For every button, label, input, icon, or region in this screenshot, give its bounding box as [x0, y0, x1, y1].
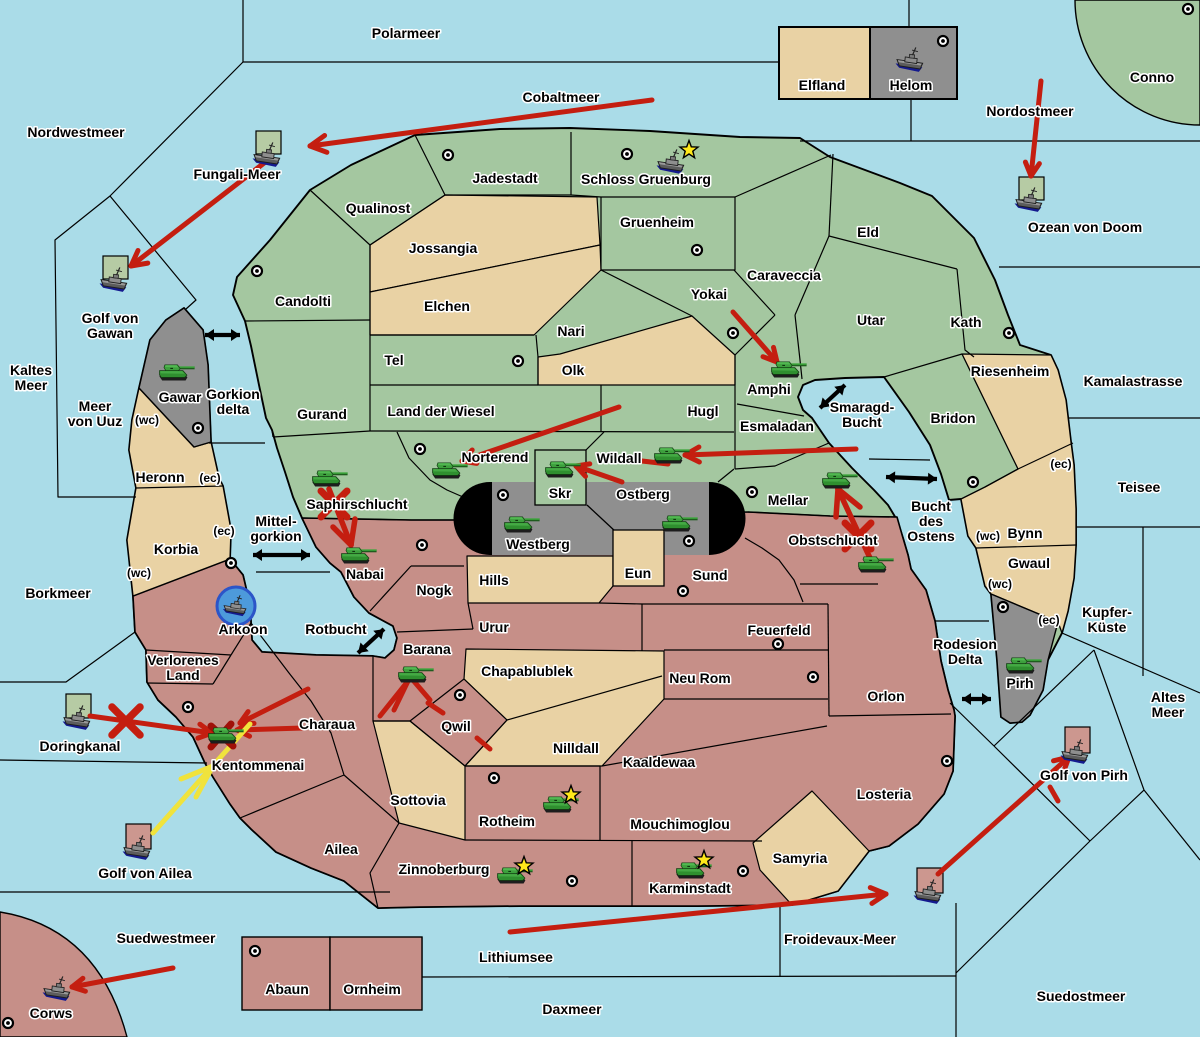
svg-text:gorkion: gorkion	[250, 528, 301, 544]
svg-text:Mouchimoglou: Mouchimoglou	[630, 816, 730, 832]
svg-text:Riesenheim: Riesenheim	[971, 363, 1050, 379]
svg-text:Abaun: Abaun	[265, 981, 309, 997]
svg-text:Elchen: Elchen	[424, 298, 470, 314]
svg-text:delta: delta	[217, 401, 250, 417]
svg-text:Polarmeer: Polarmeer	[372, 25, 441, 41]
svg-text:Arkoon: Arkoon	[219, 621, 268, 637]
svg-text:Saphirschlucht: Saphirschlucht	[306, 496, 407, 512]
svg-text:Hugl: Hugl	[687, 403, 718, 419]
svg-text:Rotheim: Rotheim	[479, 813, 535, 829]
svg-text:Gawar: Gawar	[159, 389, 202, 405]
svg-text:Verlorenes: Verlorenes	[147, 652, 219, 668]
svg-text:Fungali-Meer: Fungali-Meer	[193, 166, 281, 182]
svg-text:Rotbucht: Rotbucht	[305, 621, 367, 637]
svg-text:Gawan: Gawan	[87, 325, 133, 341]
svg-text:Yokai: Yokai	[691, 286, 727, 302]
svg-text:Chapablublek: Chapablublek	[481, 663, 573, 679]
svg-text:Nogk: Nogk	[417, 582, 452, 598]
svg-text:Gurand: Gurand	[297, 406, 347, 422]
svg-text:Olk: Olk	[562, 362, 585, 378]
svg-text:Bucht: Bucht	[842, 414, 882, 430]
svg-text:Kupfer-: Kupfer-	[1082, 604, 1132, 620]
svg-text:Wildall: Wildall	[597, 450, 642, 466]
svg-text:Eun: Eun	[625, 565, 651, 581]
svg-text:Hills: Hills	[479, 572, 509, 588]
svg-text:Borkmeer: Borkmeer	[25, 585, 91, 601]
svg-text:Altes: Altes	[1151, 689, 1185, 705]
svg-text:(ec): (ec)	[1050, 457, 1071, 471]
svg-text:Helom: Helom	[890, 77, 933, 93]
svg-text:Obstschlucht: Obstschlucht	[788, 532, 878, 548]
svg-text:Neu Rom: Neu Rom	[669, 670, 730, 686]
svg-text:Kaaldewaa: Kaaldewaa	[623, 754, 696, 770]
svg-text:Qwil: Qwil	[441, 718, 471, 734]
svg-text:Charaua: Charaua	[299, 716, 355, 732]
svg-text:Bynn: Bynn	[1008, 525, 1043, 541]
svg-text:Conno: Conno	[1130, 69, 1174, 85]
svg-text:Kaltes: Kaltes	[10, 362, 52, 378]
svg-text:Orlon: Orlon	[867, 688, 904, 704]
svg-text:Gwaul: Gwaul	[1008, 555, 1050, 571]
svg-text:(ec): (ec)	[1038, 613, 1059, 627]
svg-text:Ailea: Ailea	[324, 841, 358, 857]
svg-text:Utar: Utar	[857, 312, 886, 328]
svg-text:Kentommenai: Kentommenai	[212, 757, 305, 773]
svg-text:Eld: Eld	[857, 224, 879, 240]
svg-text:Suedostmeer: Suedostmeer	[1037, 988, 1126, 1004]
svg-text:Mellar: Mellar	[768, 492, 809, 508]
svg-text:Bridon: Bridon	[930, 410, 975, 426]
svg-text:Losteria: Losteria	[857, 786, 912, 802]
svg-text:Ostberg: Ostberg	[616, 486, 670, 502]
svg-text:Zinnoberburg: Zinnoberburg	[399, 861, 490, 877]
svg-text:des: des	[919, 513, 943, 529]
svg-text:Corws: Corws	[30, 1005, 73, 1021]
svg-text:Jadestadt: Jadestadt	[472, 170, 538, 186]
svg-text:Golf von: Golf von	[82, 310, 139, 326]
svg-text:Jossangia: Jossangia	[409, 240, 478, 256]
svg-text:Gorkion: Gorkion	[206, 386, 260, 402]
svg-text:Smaragd-: Smaragd-	[830, 399, 895, 415]
svg-text:Nordwestmeer: Nordwestmeer	[27, 124, 125, 140]
svg-text:Esmaladan: Esmaladan	[740, 418, 814, 434]
svg-text:Elfland: Elfland	[799, 77, 846, 93]
svg-text:Samyria: Samyria	[773, 850, 828, 866]
svg-text:Caraveccia: Caraveccia	[747, 267, 821, 283]
svg-text:Teisee: Teisee	[1118, 479, 1161, 495]
svg-text:Candolti: Candolti	[275, 293, 331, 309]
svg-text:Golf von Ailea: Golf von Ailea	[98, 865, 192, 881]
svg-text:Urur: Urur	[479, 619, 509, 635]
svg-text:Lithiumsee: Lithiumsee	[479, 949, 553, 965]
svg-text:Norterend: Norterend	[462, 449, 529, 465]
svg-text:Nabai: Nabai	[346, 566, 384, 582]
svg-text:Tel: Tel	[384, 352, 403, 368]
svg-text:Rodesion: Rodesion	[933, 636, 997, 652]
svg-text:Amphi: Amphi	[747, 381, 791, 397]
svg-text:Doringkanal: Doringkanal	[40, 738, 121, 754]
svg-text:Cobaltmeer: Cobaltmeer	[522, 89, 600, 105]
svg-text:Froidevaux-Meer: Froidevaux-Meer	[784, 931, 897, 947]
svg-text:Meer: Meer	[1152, 704, 1185, 720]
svg-text:Land: Land	[166, 667, 199, 683]
svg-text:Ozean von Doom: Ozean von Doom	[1028, 219, 1142, 235]
svg-text:Heronn: Heronn	[136, 469, 185, 485]
svg-text:Meer: Meer	[15, 377, 48, 393]
svg-text:(wc): (wc)	[988, 577, 1012, 591]
svg-text:(wc): (wc)	[976, 529, 1000, 543]
svg-text:Qualinost: Qualinost	[346, 200, 411, 216]
svg-text:Nari: Nari	[557, 323, 584, 339]
svg-text:Küste: Küste	[1088, 619, 1127, 635]
svg-text:Gruenheim: Gruenheim	[620, 214, 694, 230]
svg-text:Sottovia: Sottovia	[390, 792, 445, 808]
svg-text:Kath: Kath	[950, 314, 981, 330]
svg-text:Mittel-: Mittel-	[255, 513, 297, 529]
svg-text:Skr: Skr	[549, 485, 572, 501]
svg-text:Schloss Gruenburg: Schloss Gruenburg	[581, 171, 711, 187]
svg-text:Daxmeer: Daxmeer	[542, 1001, 602, 1017]
svg-text:Land der Wiesel: Land der Wiesel	[387, 403, 494, 419]
svg-text:Sund: Sund	[693, 567, 728, 583]
svg-text:Nilldall: Nilldall	[553, 740, 599, 756]
svg-text:Bucht: Bucht	[911, 498, 951, 514]
svg-text:Karminstadt: Karminstadt	[649, 880, 731, 896]
svg-text:von Uuz: von Uuz	[68, 413, 122, 429]
svg-text:Nordostmeer: Nordostmeer	[986, 103, 1074, 119]
svg-text:Korbia: Korbia	[154, 541, 199, 557]
svg-text:(ec): (ec)	[199, 471, 220, 485]
svg-text:Kamalastrasse: Kamalastrasse	[1084, 373, 1183, 389]
svg-text:Pirh: Pirh	[1006, 675, 1033, 691]
svg-text:Westberg: Westberg	[506, 536, 570, 552]
svg-text:(ec): (ec)	[213, 524, 234, 538]
svg-text:Feuerfeld: Feuerfeld	[747, 622, 810, 638]
svg-text:Ostens: Ostens	[907, 528, 955, 544]
svg-text:Ornheim: Ornheim	[343, 981, 401, 997]
svg-text:(wc): (wc)	[135, 413, 159, 427]
svg-text:Meer: Meer	[79, 398, 112, 414]
svg-text:Golf von Pirh: Golf von Pirh	[1040, 767, 1128, 783]
svg-text:(wc): (wc)	[127, 566, 151, 580]
svg-text:Delta: Delta	[948, 651, 982, 667]
svg-text:Barana: Barana	[403, 641, 451, 657]
svg-text:Suedwestmeer: Suedwestmeer	[117, 930, 216, 946]
